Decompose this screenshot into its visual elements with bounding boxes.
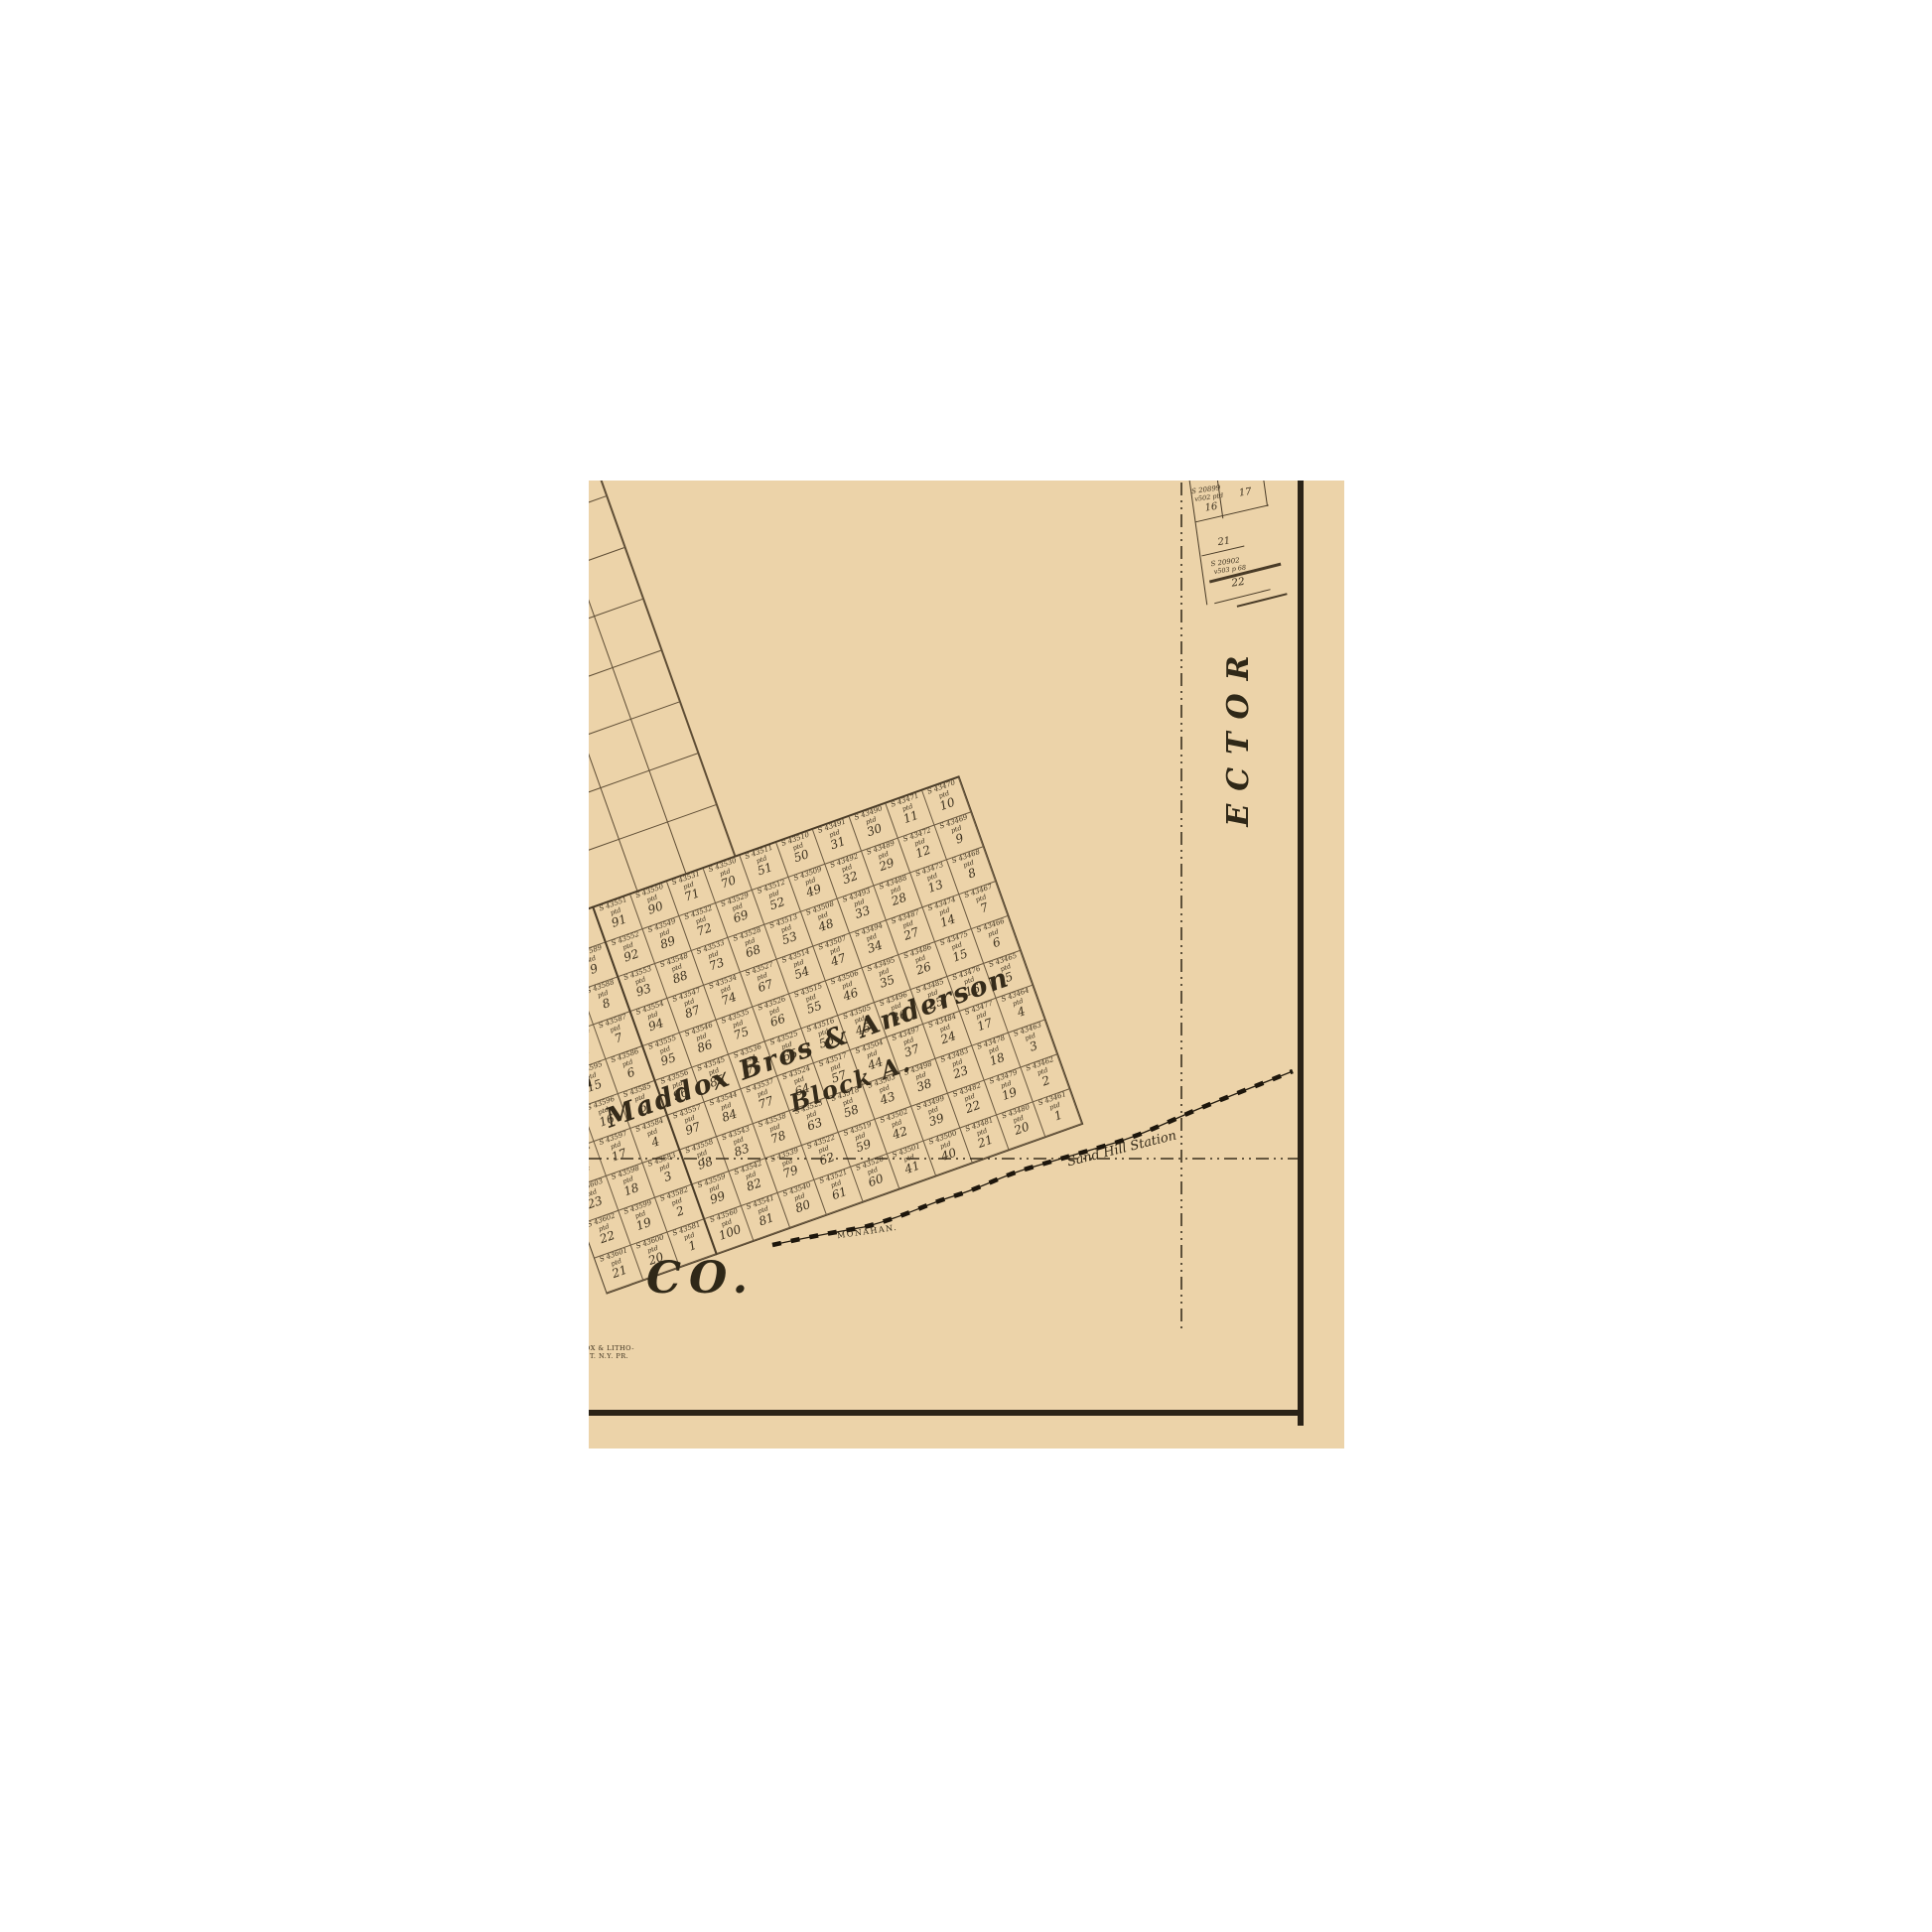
plot-number: 17 [1238, 486, 1252, 499]
plot-line [1214, 589, 1271, 604]
plot-number: 16 [1204, 501, 1218, 514]
plot-number: 21 [1217, 535, 1231, 548]
map-border-east [1298, 481, 1304, 1426]
imprint-line: OX & LITHO- [589, 1344, 634, 1352]
map-canvas: S 43610ptd30S 43609ptd29S 43608ptd28S 43… [589, 481, 1344, 1449]
neighbor-county-label: ECTOR [1221, 625, 1261, 844]
plot-line [1261, 481, 1268, 506]
lithographer-imprint: OX & LITHO- ST. N.Y. PR. [589, 1344, 634, 1360]
page-background: S 43610ptd30S 43609ptd29S 43608ptd28S 43… [0, 0, 1932, 1932]
plot-number: 22 [1231, 576, 1246, 590]
ne-plots-strip: S 20899 v502 ptd 16 17 21 S 20902 v503 p… [1178, 481, 1299, 633]
imprint-line: ST. N.Y. PR. [589, 1352, 634, 1360]
county-suffix-label: CO. [646, 1253, 756, 1304]
map-border-south [589, 1410, 1303, 1416]
